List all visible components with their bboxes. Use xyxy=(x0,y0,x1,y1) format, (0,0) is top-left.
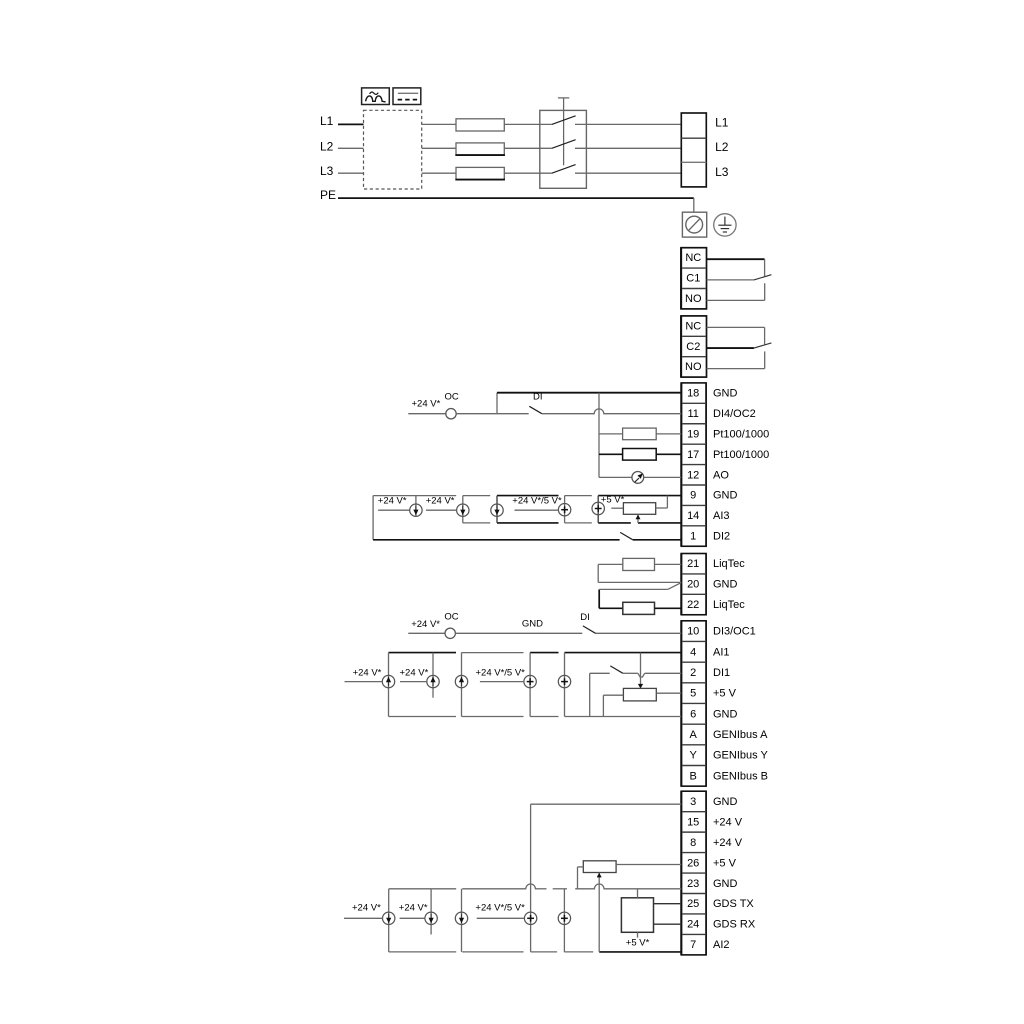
svg-text:GDS TX: GDS TX xyxy=(713,898,754,910)
svg-text:+24 V*: +24 V* xyxy=(399,902,428,913)
svg-text:14: 14 xyxy=(687,510,699,522)
svg-text:+24 V*: +24 V* xyxy=(411,619,440,630)
svg-text:A: A xyxy=(690,729,698,741)
svg-text:7: 7 xyxy=(690,939,696,951)
svg-text:1: 1 xyxy=(690,531,696,543)
svg-text:LiqTec: LiqTec xyxy=(713,558,745,570)
svg-text:NO: NO xyxy=(685,361,702,373)
svg-text:4: 4 xyxy=(690,646,696,658)
svg-text:AI2: AI2 xyxy=(713,939,730,951)
svg-text:L2: L2 xyxy=(320,139,334,153)
svg-text:C1: C1 xyxy=(686,273,700,285)
svg-text:OC: OC xyxy=(445,392,459,403)
svg-text:20: 20 xyxy=(687,579,699,591)
svg-text:GDS RX: GDS RX xyxy=(713,919,756,931)
svg-text:GND: GND xyxy=(713,796,738,808)
svg-text:6: 6 xyxy=(690,708,696,720)
svg-text:12: 12 xyxy=(687,469,699,481)
svg-text:+24 V*: +24 V* xyxy=(352,902,381,913)
svg-text:26: 26 xyxy=(687,857,699,869)
svg-text:+5 V: +5 V xyxy=(713,857,737,869)
svg-text:15: 15 xyxy=(687,816,699,828)
svg-text:DI4/OC2: DI4/OC2 xyxy=(713,408,756,420)
svg-text:+24 V*: +24 V* xyxy=(353,667,382,678)
svg-text:2: 2 xyxy=(690,667,696,679)
svg-text:+24 V*/5 V*: +24 V*/5 V* xyxy=(476,667,526,678)
svg-text:9: 9 xyxy=(690,490,696,502)
svg-text:+24 V: +24 V xyxy=(713,816,743,828)
svg-text:GND: GND xyxy=(713,388,738,400)
svg-text:NC: NC xyxy=(685,252,701,264)
svg-text:L1: L1 xyxy=(320,114,334,128)
svg-text:23: 23 xyxy=(687,878,699,890)
svg-text:C2: C2 xyxy=(686,341,700,353)
svg-text:GND: GND xyxy=(713,878,738,890)
svg-text:21: 21 xyxy=(687,558,699,570)
svg-text:Pt100/1000: Pt100/1000 xyxy=(713,428,769,440)
svg-text:+24 V*: +24 V* xyxy=(400,667,429,678)
svg-text:+5 V*: +5 V* xyxy=(601,494,625,505)
svg-text:DI: DI xyxy=(580,612,590,623)
svg-text:NC: NC xyxy=(685,320,701,332)
svg-text:GENIbus Y: GENIbus Y xyxy=(713,750,768,762)
svg-text:AI3: AI3 xyxy=(713,510,730,522)
svg-text:GND: GND xyxy=(522,618,543,629)
svg-text:+24 V*/5 V*: +24 V*/5 V* xyxy=(512,495,562,506)
svg-text:18: 18 xyxy=(687,388,699,400)
svg-text:GND: GND xyxy=(713,490,738,502)
svg-text:+24 V: +24 V xyxy=(713,837,743,849)
svg-text:GND: GND xyxy=(713,708,738,720)
svg-text:DI3/OC1: DI3/OC1 xyxy=(713,626,756,638)
svg-text:LiqTec: LiqTec xyxy=(713,599,745,611)
svg-text:GENIbus B: GENIbus B xyxy=(713,770,768,782)
svg-text:NO: NO xyxy=(685,293,702,305)
svg-text:+24 V*: +24 V* xyxy=(378,495,407,506)
svg-text:3: 3 xyxy=(690,796,696,808)
svg-text:+24 V*: +24 V* xyxy=(412,398,441,409)
svg-text:DI1: DI1 xyxy=(713,667,730,679)
svg-text:5: 5 xyxy=(690,688,696,700)
svg-text:GND: GND xyxy=(713,579,738,591)
svg-text:OC: OC xyxy=(444,611,458,622)
svg-text:24: 24 xyxy=(687,919,699,931)
svg-text:Pt100/1000: Pt100/1000 xyxy=(713,449,769,461)
svg-text:PE: PE xyxy=(320,188,336,202)
svg-text:L3: L3 xyxy=(320,164,334,178)
svg-text:DI2: DI2 xyxy=(713,531,730,543)
svg-text:+24 V*/5 V*: +24 V*/5 V* xyxy=(475,902,525,913)
svg-text:10: 10 xyxy=(687,626,699,638)
svg-text:DI: DI xyxy=(533,392,543,403)
svg-text:GENIbus A: GENIbus A xyxy=(713,729,768,741)
svg-text:17: 17 xyxy=(687,449,699,461)
svg-text:AI1: AI1 xyxy=(713,646,730,658)
svg-text:22: 22 xyxy=(687,599,699,611)
svg-text:11: 11 xyxy=(687,408,698,420)
svg-text:8: 8 xyxy=(690,837,696,849)
svg-text:L1: L1 xyxy=(715,115,729,129)
svg-text:Y: Y xyxy=(690,750,698,762)
svg-text:B: B xyxy=(690,770,697,782)
svg-text:AO: AO xyxy=(713,469,729,481)
svg-text:+5 V*: +5 V* xyxy=(626,937,650,948)
svg-text:25: 25 xyxy=(687,898,699,910)
svg-text:+5 V: +5 V xyxy=(713,688,737,700)
svg-text:L2: L2 xyxy=(715,140,729,154)
svg-text:L3: L3 xyxy=(715,165,729,179)
svg-text:19: 19 xyxy=(687,428,699,440)
svg-text:+24 V*: +24 V* xyxy=(426,495,455,506)
